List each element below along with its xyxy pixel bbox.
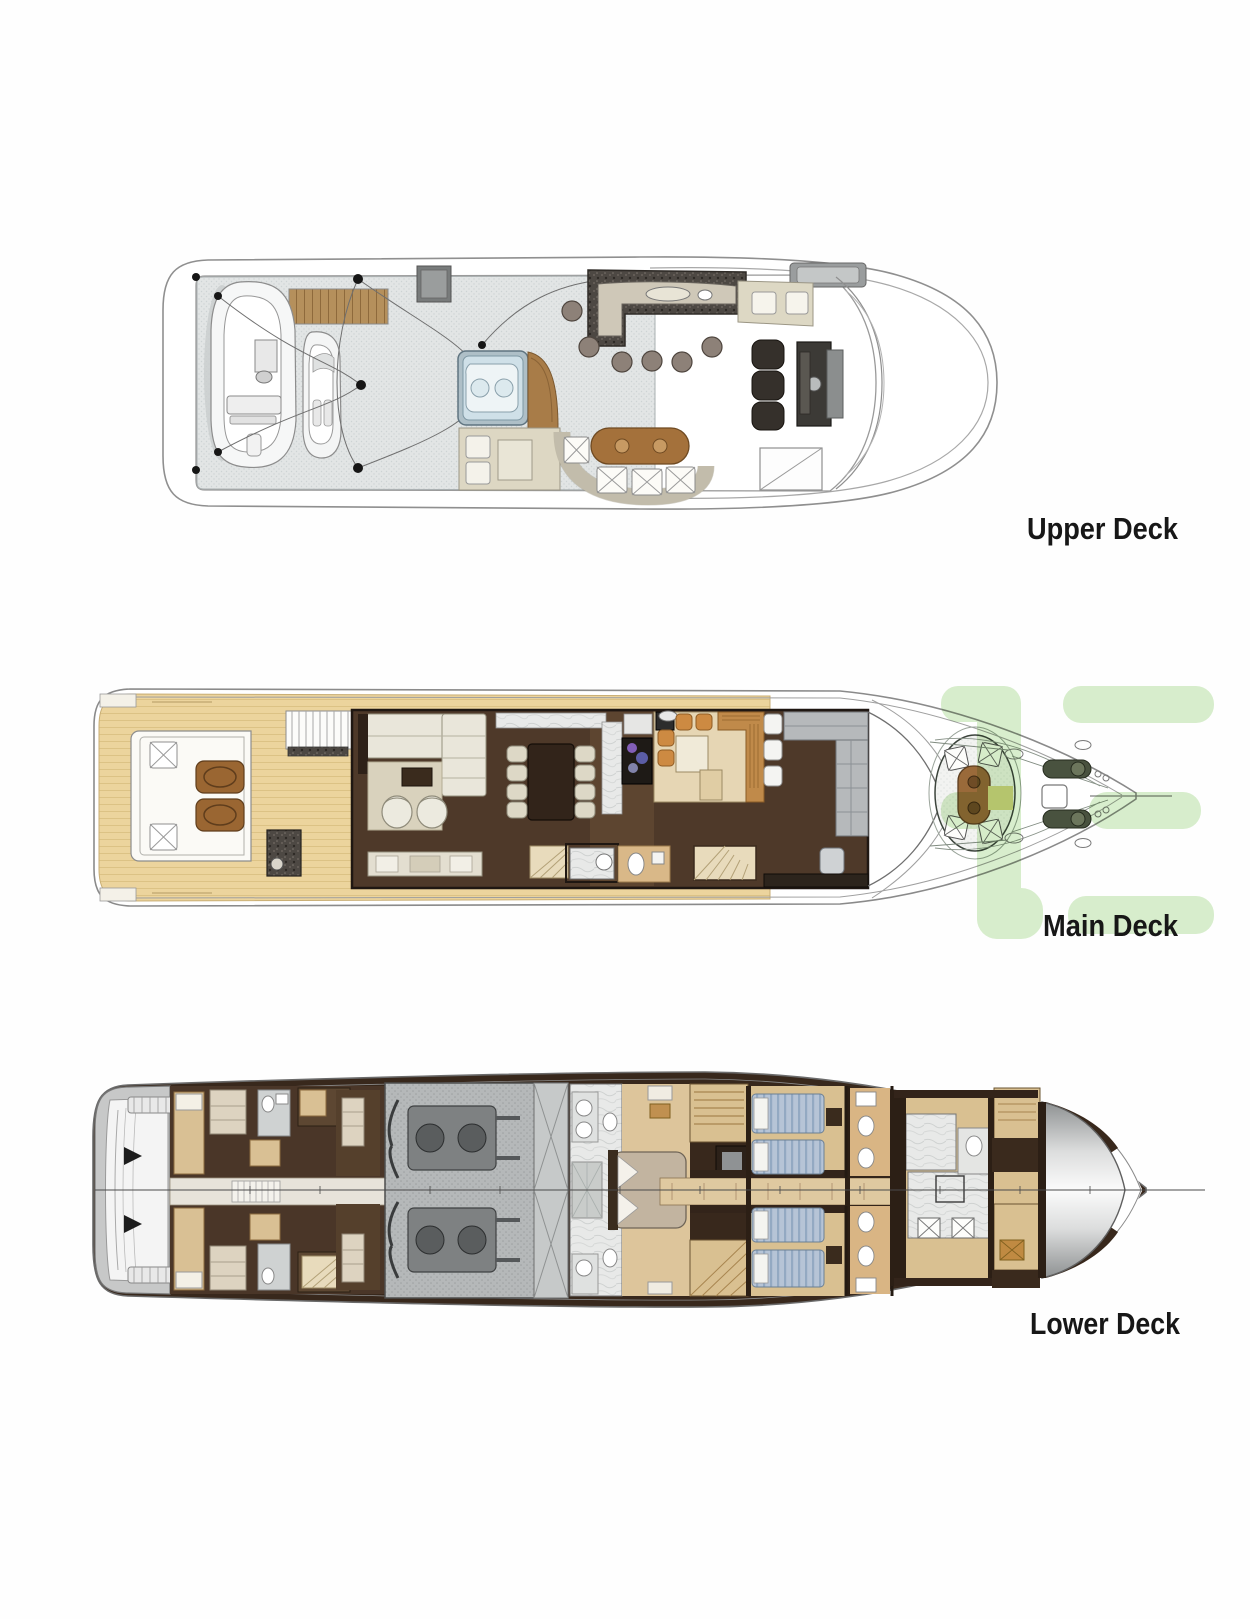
svg-text:Lower Deck: Lower Deck bbox=[1030, 1306, 1181, 1341]
svg-text:Main Deck: Main Deck bbox=[1043, 908, 1179, 943]
svg-text:Upper Deck: Upper Deck bbox=[1027, 511, 1179, 546]
